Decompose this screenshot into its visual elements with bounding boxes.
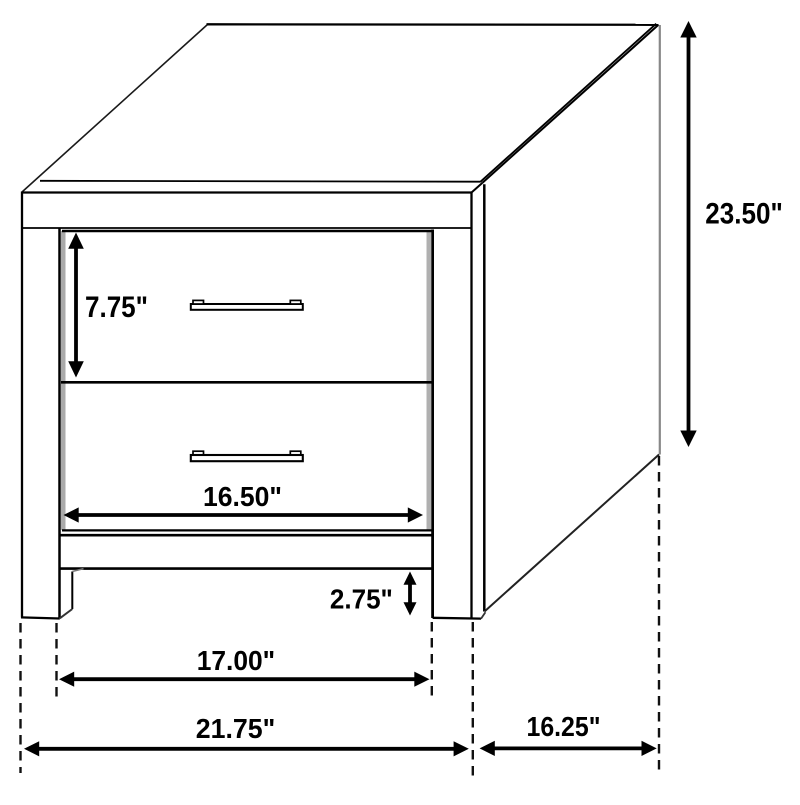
- svg-text:16.50": 16.50": [203, 481, 282, 512]
- svg-text:23.50": 23.50": [705, 198, 783, 231]
- svg-text:7.75": 7.75": [85, 291, 148, 324]
- svg-text:17.00": 17.00": [197, 645, 276, 676]
- svg-text:21.75": 21.75": [196, 713, 275, 744]
- svg-text:16.25": 16.25": [527, 711, 601, 742]
- svg-text:2.75": 2.75": [330, 583, 393, 614]
